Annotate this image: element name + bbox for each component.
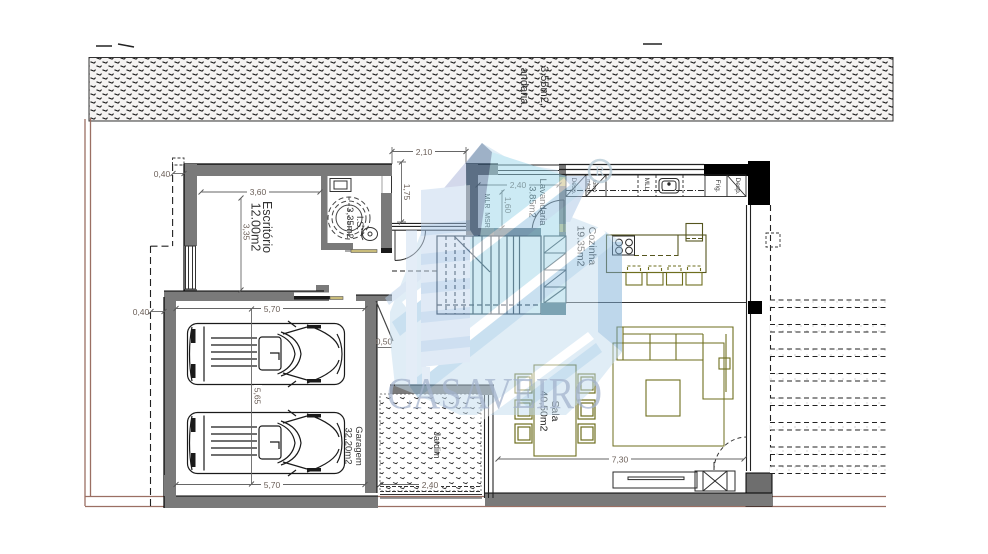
svg-text:3,55m2,: 3,55m2, <box>538 66 550 106</box>
svg-text:andaria: andaria <box>518 68 530 106</box>
svg-text:0,40: 0,40 <box>154 169 171 179</box>
svg-text:3,35: 3,35 <box>242 224 252 241</box>
svg-text:32,20m2: 32,20m2 <box>343 428 354 465</box>
svg-text:3,35m2: 3,35m2 <box>344 207 355 239</box>
svg-text:5,65: 5,65 <box>253 388 263 405</box>
svg-text:Jardim: Jardim <box>432 431 442 458</box>
svg-text:7,30: 7,30 <box>612 455 629 465</box>
svg-text:1,75: 1,75 <box>402 184 412 201</box>
svg-text:3,60: 3,60 <box>250 187 267 197</box>
svg-text:Desp.: Desp. <box>734 178 741 195</box>
svg-text:CASAVEIRO: CASAVEIRO <box>387 369 602 418</box>
svg-text:5,70: 5,70 <box>264 480 281 490</box>
svg-text:2,10: 2,10 <box>416 147 433 157</box>
svg-text:0,40: 0,40 <box>133 307 150 317</box>
svg-text:Garagem: Garagem <box>353 426 364 466</box>
svg-text:5,70: 5,70 <box>264 304 281 314</box>
svg-text:Frig.: Frig. <box>714 180 721 193</box>
svg-text:R: R <box>595 164 605 180</box>
svg-text:MLL: MLL <box>643 178 650 191</box>
svg-text:2,40: 2,40 <box>422 480 439 490</box>
